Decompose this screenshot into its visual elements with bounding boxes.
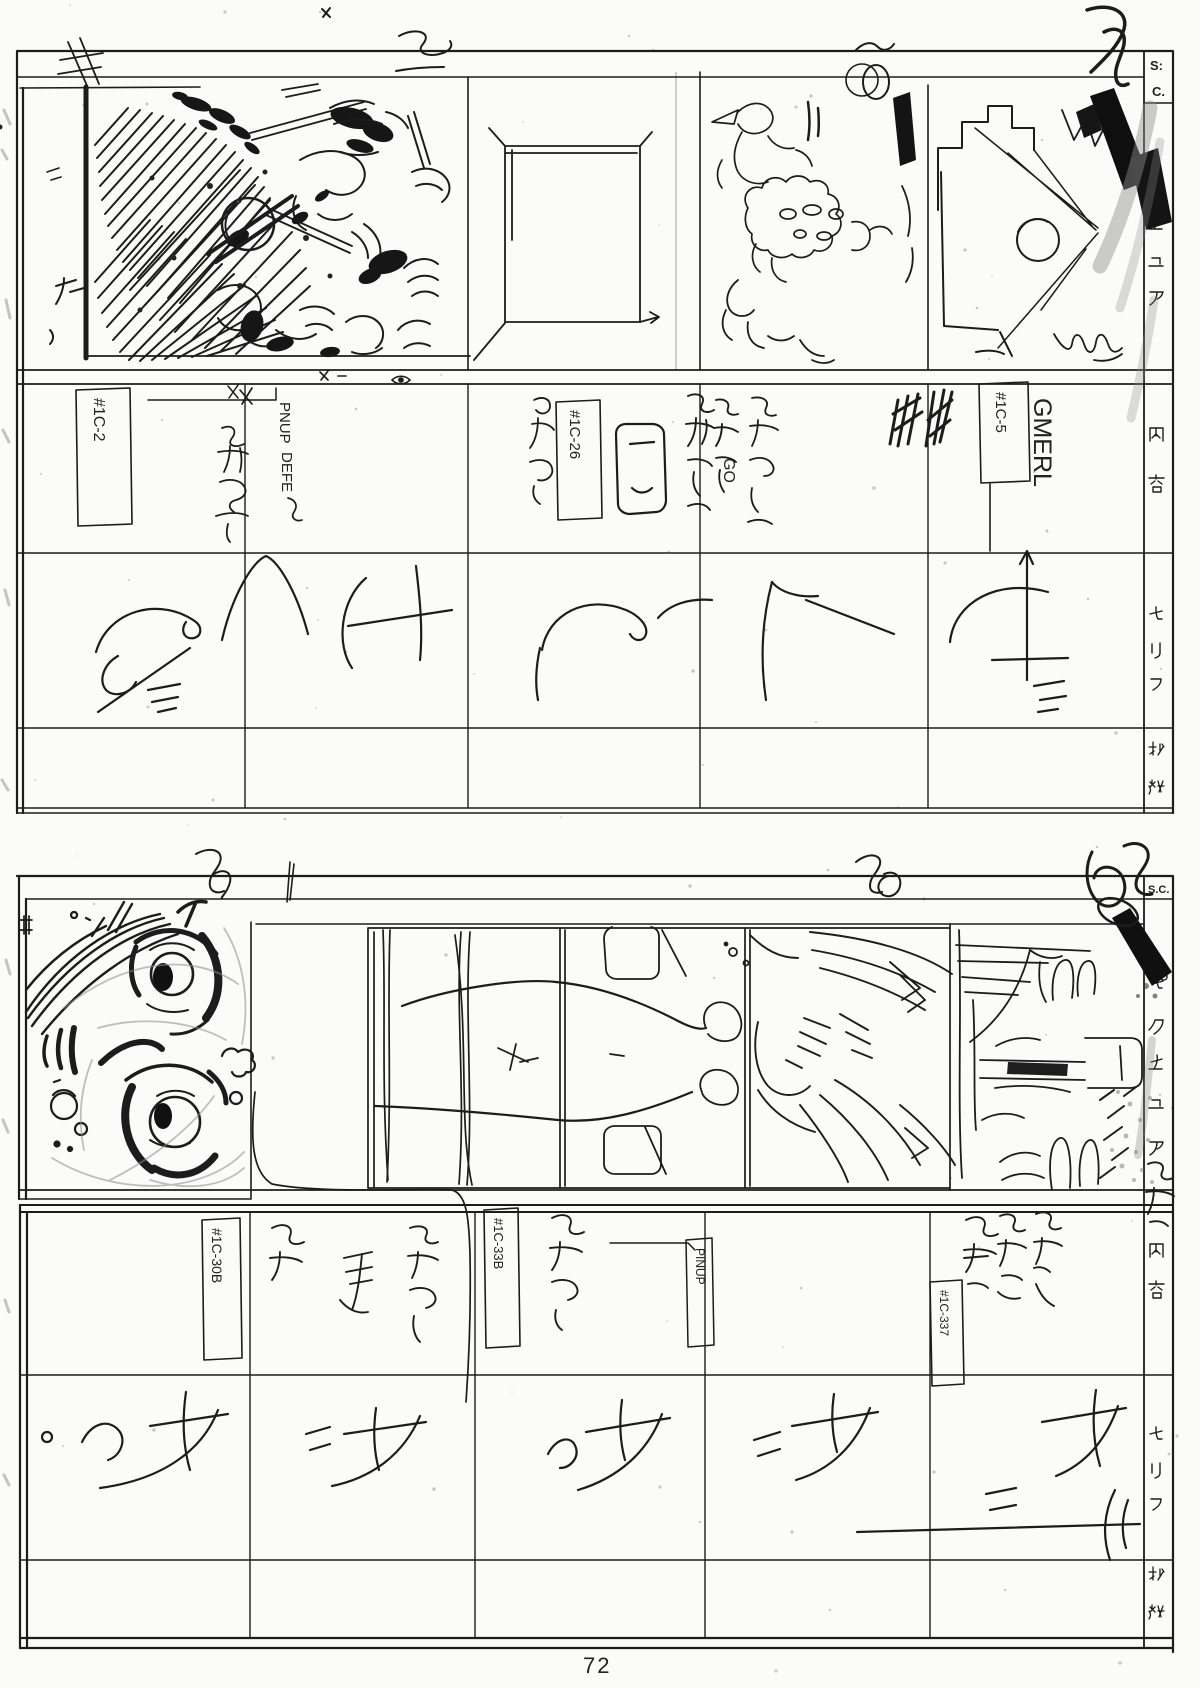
svg-text:C.: C.	[1152, 84, 1165, 99]
svg-text:PINUP: PINUP	[693, 1248, 707, 1285]
svg-text:#1C-30B: #1C-30B	[209, 1228, 225, 1283]
svg-text:DEFE: DEFE	[278, 452, 295, 492]
svg-text:GMERL: GMERL	[1028, 398, 1056, 487]
svg-text:S:: S:	[1150, 58, 1163, 73]
svg-text:#1C-33B: #1C-33B	[491, 1218, 506, 1269]
svg-text:#1C-337: #1C-337	[937, 1290, 951, 1336]
svg-text:PNUP: PNUP	[276, 402, 293, 444]
svg-text:72: 72	[583, 1653, 611, 1678]
svg-text:#1C-26: #1C-26	[566, 410, 583, 459]
svg-text:#1C-5: #1C-5	[992, 392, 1009, 433]
svg-text:GO: GO	[720, 458, 737, 483]
svg-text:#1C-2: #1C-2	[90, 398, 107, 442]
